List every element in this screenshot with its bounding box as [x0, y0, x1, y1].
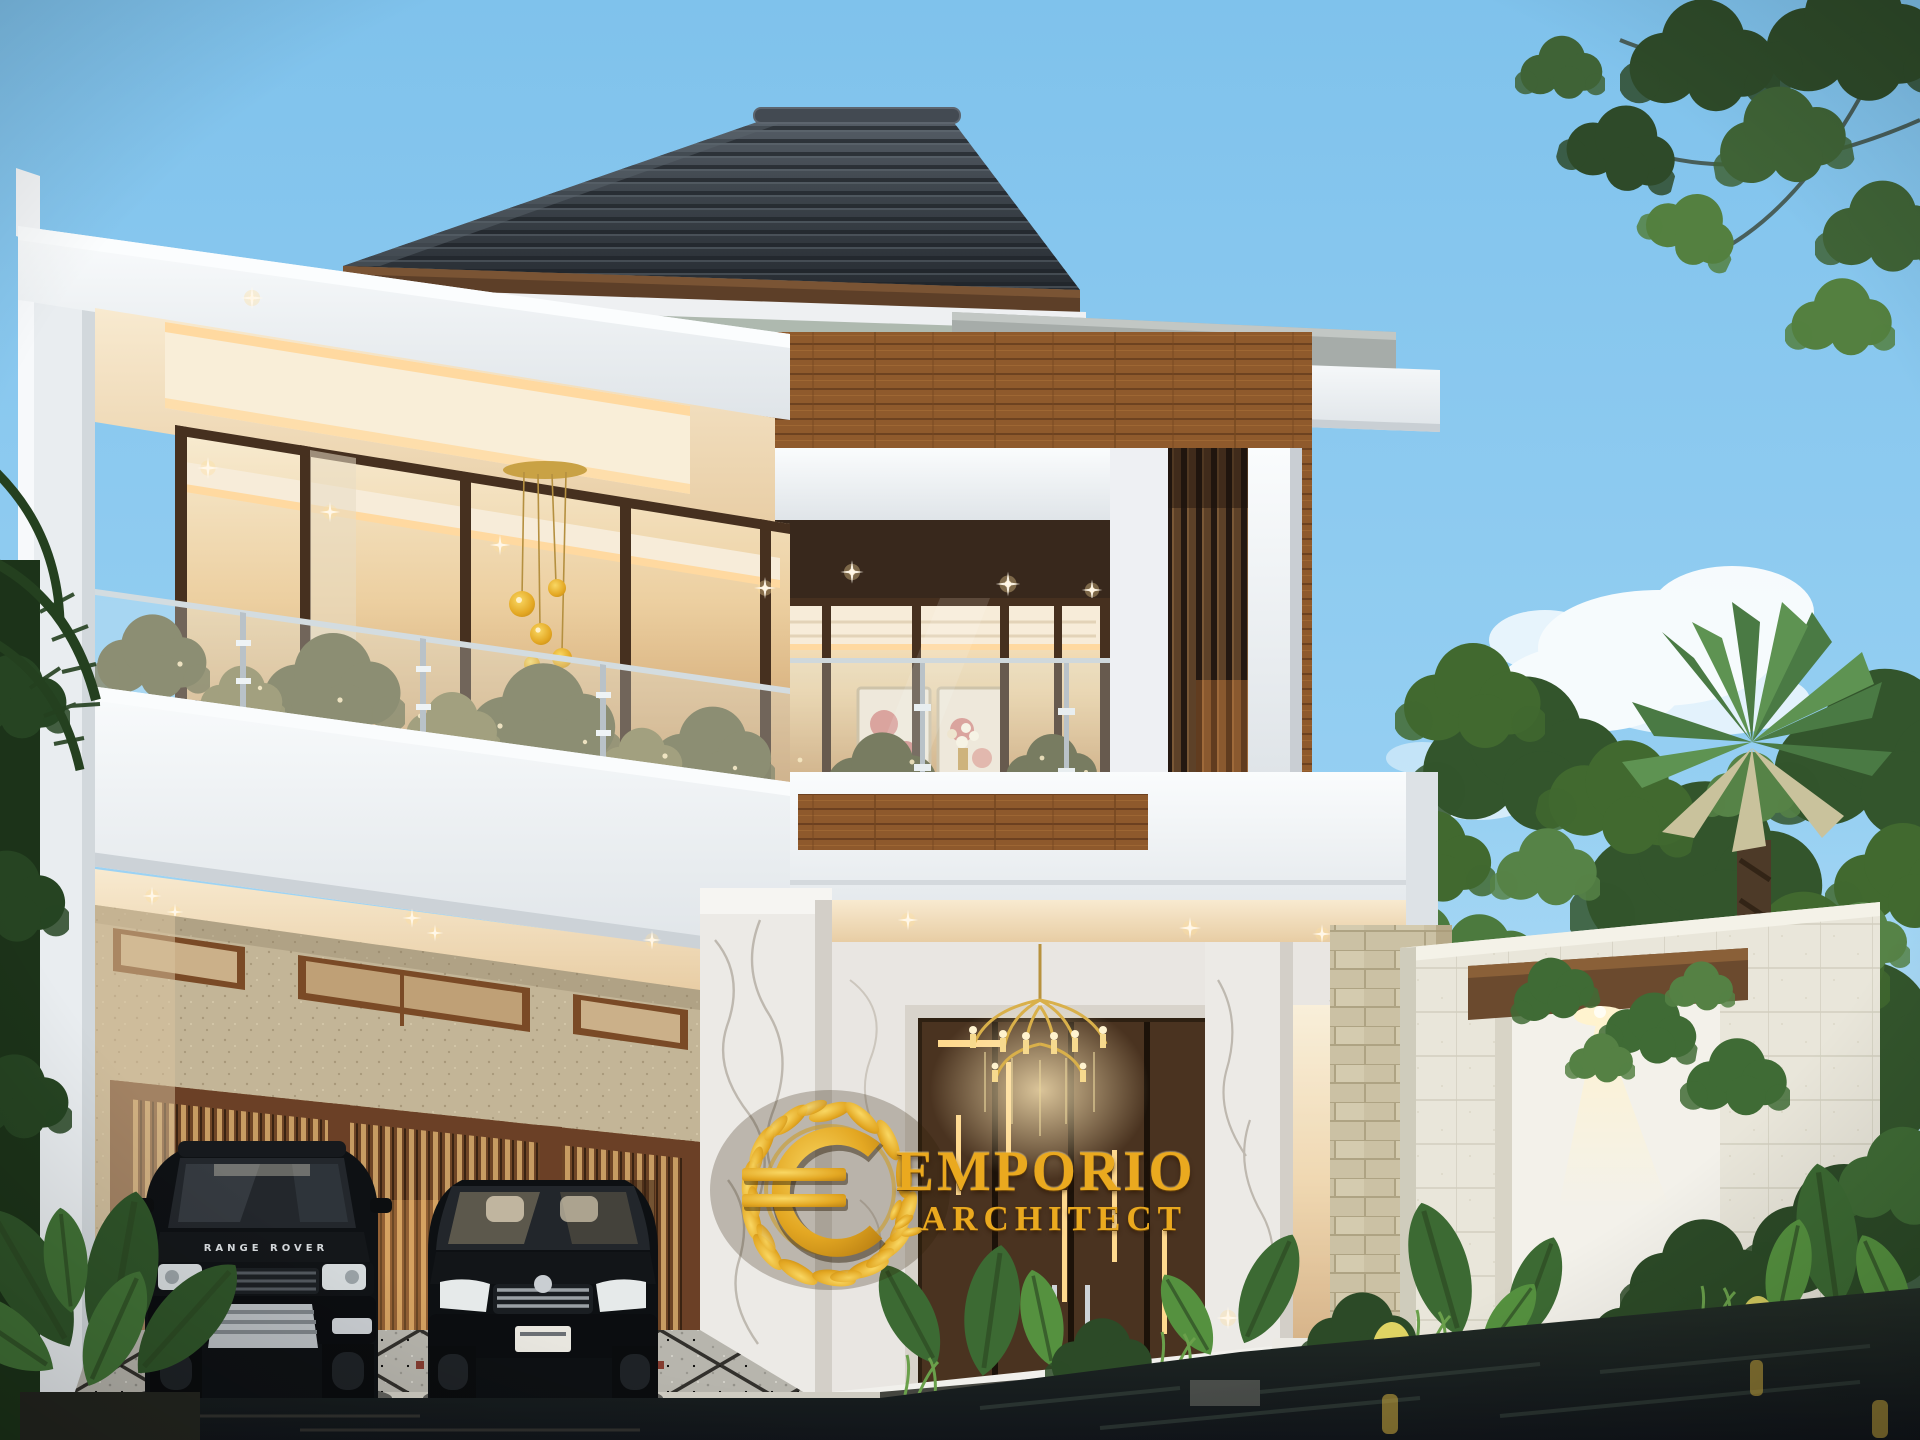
watermark-logo — [710, 1090, 950, 1290]
vignette — [0, 0, 1920, 1440]
architectural-render-scene: EMPORIO ARCHITECT RANGE ROVER — [0, 0, 1920, 1440]
scene-canvas — [0, 0, 1920, 1440]
